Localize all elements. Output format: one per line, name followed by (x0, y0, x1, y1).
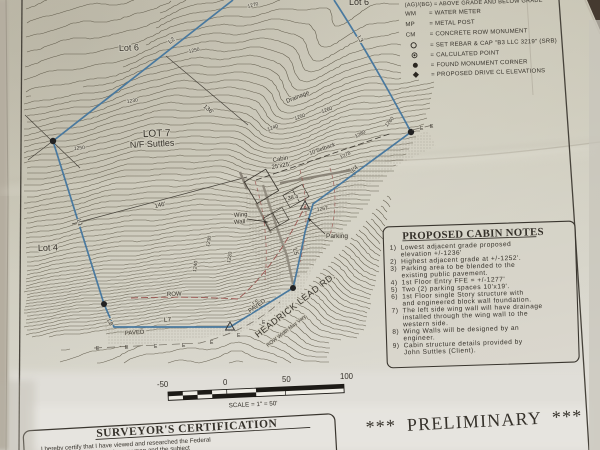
svg-text:8): 8) (392, 329, 399, 336)
svg-text:Parking: Parking (326, 233, 348, 240)
svg-text:L7: L7 (164, 317, 172, 324)
svg-text:0: 0 (223, 378, 228, 387)
svg-text:3): 3) (390, 266, 397, 273)
svg-text:Wall: Wall (234, 219, 246, 226)
svg-text:6): 6) (391, 294, 398, 301)
svg-text:CM: CM (406, 32, 416, 38)
svg-text:Lot 4: Lot 4 (38, 242, 58, 253)
svg-text:7): 7) (392, 308, 399, 315)
svg-text:100: 100 (340, 372, 354, 381)
svg-text:50: 50 (282, 375, 291, 384)
svg-text:-50: -50 (157, 380, 169, 389)
svg-text:1): 1) (390, 245, 397, 252)
svg-text:1250: 1250 (74, 145, 86, 152)
svg-text:9): 9) (393, 343, 400, 350)
svg-text:Lot 6: Lot 6 (349, 0, 369, 7)
svg-text:Wing: Wing (234, 212, 248, 219)
svg-text:Lot 6: Lot 6 (119, 42, 139, 53)
svg-text:WM: WM (405, 11, 416, 17)
svg-text:MP: MP (405, 22, 415, 28)
svg-text:ROW: ROW (167, 291, 182, 298)
